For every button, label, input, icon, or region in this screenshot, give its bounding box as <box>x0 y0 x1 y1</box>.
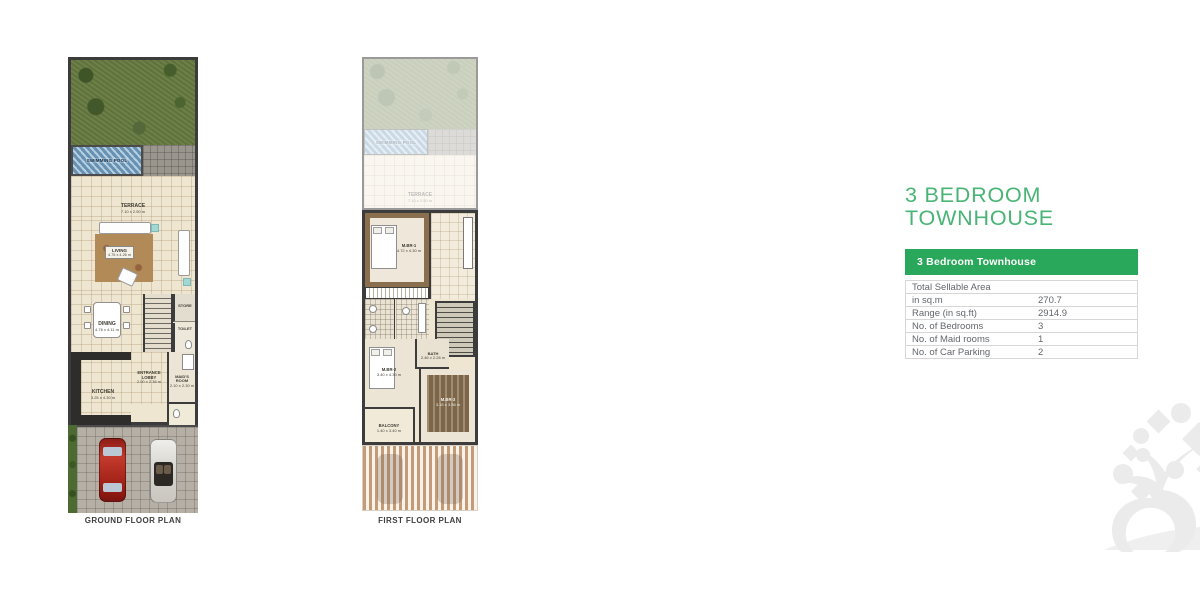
pillow <box>385 227 394 234</box>
dining-chair <box>84 306 91 313</box>
accent-pillow <box>183 278 191 286</box>
master-bedroom-2: M.BR-2 3.40 x 4.30 m <box>365 339 415 407</box>
toilet-fixture <box>185 340 192 349</box>
kitchen-label: KITCHEN 3.25 x 4.30 m <box>79 384 127 406</box>
kitchen-counter <box>71 352 131 360</box>
page-title: 3 BEDROOM TOWNHOUSE <box>905 184 1054 230</box>
first-floor-outline: M.BR-1 4.72 x 4.30 m DN <box>362 210 478 445</box>
pillow <box>371 349 380 356</box>
car-shadow <box>437 454 463 504</box>
bedroom-3-label: M.BR-3 3.15 x 3.56 m <box>425 393 471 412</box>
car-windshield <box>103 447 122 456</box>
dining-chair <box>123 306 130 313</box>
maids-room: MAID'S ROOM 2.10 x 2.30 m <box>167 352 195 402</box>
garden-area-ghost <box>364 59 476 129</box>
maids-room-label: MAID'S ROOM 2.10 x 2.30 m <box>169 370 195 393</box>
first-floor-plan: SWIMMING POOL TERRACE 7.10 x 2.50 m M.BR… <box>362 57 478 532</box>
table-row: No. of Car Parking 2 <box>905 346 1138 359</box>
master-bedroom-1: M.BR-1 4.72 x 4.30 m <box>365 213 429 287</box>
title-line-1: 3 BEDROOM <box>905 183 1041 207</box>
store-room: STORE <box>173 294 195 322</box>
ghosted-lower-floor: SWIMMING POOL TERRACE 7.10 x 2.50 m <box>362 57 478 210</box>
swimming-pool-ghost: SWIMMING POOL <box>364 129 428 155</box>
brochure-page: SWIMMING POOL TERRACE 7.10 x 2.50 m LIVI… <box>0 0 1200 600</box>
sink-fixture <box>402 307 410 315</box>
sofa-top <box>99 222 151 234</box>
staircase-up: UP <box>143 294 173 352</box>
bathroom-2 <box>396 299 429 339</box>
tree-logo-icon <box>1084 402 1200 552</box>
spec-table-header: 3 Bedroom Townhouse <box>905 249 1138 275</box>
entrance-lobby-label: ENTRANCE LOBBY 2.00 x 2.36 m <box>131 366 167 390</box>
terrace-label: TERRACE 7.10 x 2.50 m <box>71 198 195 220</box>
bathroom-3: BATH 2.46 x 2.26 m <box>415 339 449 369</box>
table-row: Total Sellable Area <box>905 281 1138 294</box>
car-rear-window <box>103 483 122 492</box>
silver-car <box>150 439 177 503</box>
swimming-pool: SWIMMING POOL <box>71 145 143 176</box>
sofa-right <box>178 230 190 276</box>
table-row: Range (in sq.ft) 2914.9 <box>905 307 1138 320</box>
table-row: in sq.m 270.7 <box>905 294 1138 307</box>
bathroom-1 <box>365 299 395 339</box>
wardrobe <box>365 287 429 299</box>
maid-bed <box>182 354 194 370</box>
swimming-pool-ghost-label: SWIMMING POOL <box>375 140 418 145</box>
toilet-label: TOILET <box>175 327 195 332</box>
living-label: LIVING 4.75 x 4.26 m <box>105 246 134 259</box>
pool-deck-paving <box>143 145 195 176</box>
ground-floor-outline: SWIMMING POOL TERRACE 7.10 x 2.50 m LIVI… <box>68 57 198 425</box>
bathroom-3-label: BATH 2.46 x 2.26 m <box>417 347 449 365</box>
swimming-pool-label: SWIMMING POOL <box>86 158 129 163</box>
developer-logo-watermark <box>1078 402 1200 552</box>
entrance-lobby: ENTRANCE LOBBY 2.00 x 2.36 m <box>131 352 167 404</box>
planter <box>463 217 473 269</box>
terrace-ghost-label: TERRACE 7.10 x 2.50 m <box>364 187 476 209</box>
spec-table: 3 Bedroom Townhouse Total Sellable Area … <box>905 249 1138 359</box>
accent-pillow <box>151 224 159 232</box>
ground-floor-plan: SWIMMING POOL TERRACE 7.10 x 2.50 m LIVI… <box>68 57 198 532</box>
terrace-ghost: TERRACE 7.10 x 2.50 m <box>364 155 476 208</box>
balcony-label: BALCONY 1.40 x 3.40 m <box>365 419 413 438</box>
toilet-fixture <box>173 409 180 418</box>
store-label: STORE <box>175 304 195 309</box>
pool-deck-ghost <box>428 129 476 155</box>
pillow <box>373 227 382 234</box>
balcony: BALCONY 1.40 x 3.40 m <box>365 407 415 442</box>
car-seat <box>164 465 171 474</box>
sink-fixture <box>369 305 377 313</box>
car-seat <box>156 465 163 474</box>
dining-room: DINING 4.76 x 4.11 m <box>71 294 143 352</box>
garden-area <box>71 60 195 145</box>
dining-label: DINING 4.76 x 4.11 m <box>85 316 129 338</box>
ground-floor-caption: GROUND FLOOR PLAN <box>68 516 198 525</box>
hedge-strip <box>68 425 77 513</box>
master-bedroom-3: M.BR-3 3.15 x 3.56 m <box>419 369 475 442</box>
bedroom-1-label: M.BR-1 4.72 x 4.30 m <box>391 239 427 258</box>
pillow <box>383 349 392 356</box>
car-cockpit <box>154 462 173 486</box>
red-car <box>99 438 126 502</box>
terrace-area: TERRACE 7.10 x 2.50 m <box>71 176 195 220</box>
bathtub <box>418 303 426 333</box>
wc-fixture <box>369 325 377 333</box>
car-shadow <box>377 454 403 504</box>
living-room: LIVING 4.75 x 4.26 m <box>71 220 195 294</box>
table-row: No. of Bedrooms 3 <box>905 320 1138 333</box>
driveway <box>77 425 198 513</box>
title-line-2: TOWNHOUSE <box>905 206 1054 230</box>
first-floor-caption: FIRST FLOOR PLAN <box>362 516 478 525</box>
open-roof-terrace <box>429 213 475 299</box>
toilet-room: TOILET <box>173 323 195 352</box>
pergola-roof <box>362 445 478 511</box>
table-row: No. of Maid rooms 1 <box>905 333 1138 346</box>
toilet-room-2 <box>167 402 195 425</box>
bedroom-2-label: M.BR-2 3.40 x 4.30 m <box>369 363 409 382</box>
spec-table-body: Total Sellable Area in sq.m 270.7 Range … <box>905 280 1138 359</box>
kitchen-room: KITCHEN 3.25 x 4.30 m <box>71 352 131 425</box>
kitchen-counter <box>71 415 131 425</box>
